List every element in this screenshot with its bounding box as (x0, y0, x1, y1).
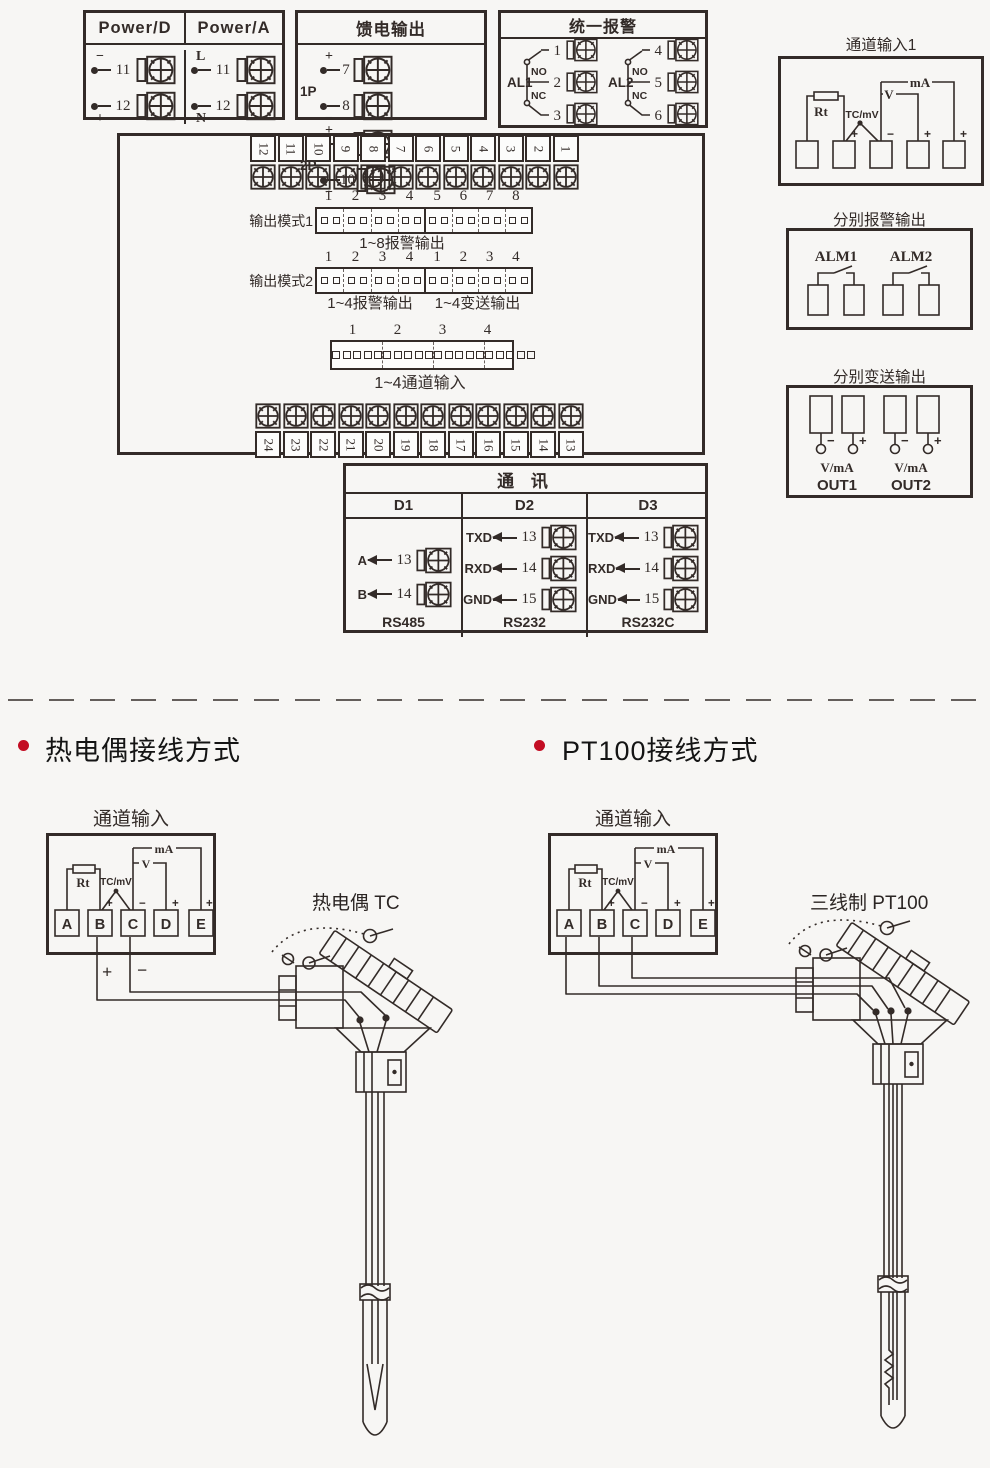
signal-label: GND (588, 592, 617, 607)
sign: + (851, 127, 858, 141)
terminal-number: 7 (340, 62, 352, 79)
comm-terminal-row: GND 15 (463, 584, 586, 615)
channel1-diagram: TC/mV Rt mA V + − + + (781, 59, 981, 183)
jumper-cell (426, 209, 453, 232)
screw-terminal-icon (393, 402, 419, 430)
terminal-number: 4 (655, 43, 663, 59)
sign: + (206, 898, 213, 910)
pin-square (333, 217, 340, 224)
screw-terminal-icon (668, 71, 698, 92)
screw-terminal-icon (352, 55, 394, 85)
jumper-cell (399, 269, 425, 292)
terminal-letter: D (663, 917, 673, 933)
terminal: 21 (338, 402, 364, 458)
pin-square (375, 277, 382, 284)
sign: + (934, 433, 942, 448)
terminal: 2 (525, 135, 551, 191)
tc-wire-plus: + (102, 962, 112, 983)
separate-alarm-title: 分别报警输出 (786, 208, 973, 230)
arrow-left-icon (616, 568, 639, 570)
mode2-jumper-block-b (424, 267, 533, 294)
channel-pin-group (332, 342, 383, 368)
channel-connector-numbers: 1234 (330, 322, 510, 339)
sign: + (674, 898, 681, 910)
pin-square (466, 351, 474, 359)
screw-terminal-icon (567, 39, 597, 60)
channel-number: 4 (465, 322, 510, 339)
terminal-number: 23 (283, 431, 309, 458)
terminal-number: 5 (655, 75, 663, 91)
screw-terminal-icon (250, 163, 276, 191)
arrow-left-icon (493, 599, 517, 601)
terminal: 24 (255, 402, 281, 458)
screw-terminal-icon (567, 71, 597, 92)
wire-dot (191, 103, 198, 110)
terminal: 1 (553, 135, 579, 191)
channel1-box: TC/mV Rt mA V + − + + (778, 56, 984, 186)
wire (198, 105, 211, 107)
pt-channel-box: A B C D E Rt TC/mV mA V + − + + (548, 833, 718, 955)
pt-terminal-dot (904, 1007, 911, 1014)
jumper-cell (506, 209, 532, 232)
pin-square (348, 217, 355, 224)
comm-terminal-row: RXD 14 (463, 553, 586, 584)
polarity-sign: + (325, 49, 333, 65)
comm-title: 通 讯 (346, 466, 705, 494)
pin-square (509, 277, 516, 284)
terminal-number: 20 (365, 431, 391, 458)
comm-col-d1-header: D1 (346, 494, 461, 517)
terminal-number: 8 (360, 135, 386, 162)
pin-square (441, 277, 448, 284)
mode2-caption-b: 1~4变送输出 (420, 292, 535, 313)
tc-terminal-dot (356, 1016, 363, 1023)
arrow-left-icon (368, 559, 392, 561)
arrow-left-icon (493, 537, 517, 539)
rt-label: Rt (76, 876, 90, 890)
screw-terminal-icon (448, 402, 474, 430)
terminal-number: 2 (554, 75, 562, 91)
terminal-number: 8 (340, 98, 352, 115)
separate-transmit-title: 分别变送输出 (786, 365, 973, 387)
jumper-number: 4 (396, 249, 423, 266)
terminal: 17 (448, 402, 474, 458)
comm-terminal-row: TXD 13 (463, 522, 586, 553)
terminal-letter: D (161, 917, 171, 933)
tc-sensor-label: 热电偶 TC (312, 888, 400, 915)
terminal: 19 (393, 402, 419, 458)
comm-col-d2-header: D2 (461, 494, 586, 517)
jumper-cell (317, 269, 344, 292)
signal-label: TXD (466, 530, 492, 545)
pin-square (404, 351, 412, 359)
terminal-letter: C (630, 917, 641, 933)
arrow-left-icon (368, 593, 392, 595)
terminal-number: 13 (518, 529, 540, 546)
terminal: 20 (365, 402, 391, 458)
alarm-relay-al2: AL2 NO NC 4 5 6 (608, 39, 698, 124)
pt-sensor-drawing (789, 914, 975, 1428)
screw-terminal-icon (135, 55, 177, 85)
sign: − (641, 898, 648, 910)
pin-square (364, 351, 372, 359)
pin-square (517, 351, 525, 359)
tc-channel-box: A B C D E Rt TC/mV mA V + − + + (46, 833, 216, 955)
separate-alarm-box: ALM1 ALM2 (786, 228, 973, 330)
nc-label: NC (531, 90, 547, 102)
comm-rows: TXD 13 RXD 14 GND (588, 519, 708, 615)
wire (198, 69, 211, 71)
terminal: 15 (503, 402, 529, 458)
signal-label: RXD (588, 561, 615, 576)
comm-col-d2: TXD 13 RXD 14 GND (461, 519, 586, 637)
screw-terminal-icon (553, 163, 579, 191)
terminal-row: − 11 (86, 52, 184, 88)
terminal-number: 5 (443, 135, 469, 162)
polarity-sign: + (96, 111, 104, 127)
tc-sensor-drawing (272, 922, 458, 1435)
terminal-number: 15 (518, 591, 540, 608)
terminal-number: 6 (655, 108, 663, 124)
comm-terminal-row: TXD 13 (588, 522, 708, 553)
screw-terminal-icon (498, 163, 524, 191)
terminal-row: L 11 (186, 52, 282, 88)
channel-number: 2 (375, 322, 420, 339)
pin-square (387, 277, 394, 284)
power-box: Power/D Power/A − 11 + 12 (83, 10, 285, 120)
tc-section-heading: 热电偶接线方式 (45, 729, 241, 768)
terminal-number: 3 (554, 108, 562, 124)
rear-terminal-strip-top: 12 11 10 9 8 7 6 5 (250, 135, 579, 191)
terminal-number: 13 (640, 529, 662, 546)
pin-square (374, 351, 382, 359)
ma-label: mA (155, 842, 174, 856)
terminal: 18 (420, 402, 446, 458)
sign: + (608, 898, 615, 910)
feed-group-1p: 1P + 7 − 8 (298, 50, 394, 124)
pin-square (321, 217, 328, 224)
terminal-number: 11 (111, 62, 135, 79)
comm-col-d1: A 13 B 14 RS485 (346, 519, 461, 637)
pin-square (321, 277, 328, 284)
separate-transmit-diagram: − + − + V/mA V/mA OUT1 OUT2 (789, 388, 970, 495)
terminal-number: 21 (338, 431, 364, 458)
alm1-label: ALM1 (815, 249, 858, 265)
terminal: 3 (498, 135, 524, 191)
jumper-cell (453, 209, 480, 232)
comm-rows: TXD 13 RXD 14 GND (463, 519, 586, 615)
terminal: 11 (278, 135, 304, 191)
screw-terminal-icon (475, 402, 501, 430)
channel-pin-group (383, 342, 434, 368)
sign: − (887, 127, 894, 141)
sign: + (859, 433, 867, 448)
separate-transmit-box: − + − + V/mA V/mA OUT1 OUT2 (786, 385, 973, 498)
output-mode1-label: 输出模式1 (233, 211, 313, 231)
pin-square (415, 351, 423, 359)
screw-terminal-icon (255, 402, 281, 430)
jumper-cell (453, 269, 480, 292)
comm-box: 通 讯 D1 D2 D3 A 13 B 1 (343, 463, 708, 633)
screw-terminal-icon (352, 91, 394, 121)
bullet-icon (18, 740, 29, 751)
terminal-number: 1 (553, 135, 579, 162)
terminal-number: 9 (333, 135, 359, 162)
v-label: V (884, 87, 894, 102)
comm-col-d3: TXD 13 RXD 14 GND (586, 519, 708, 637)
pin-square (441, 217, 448, 224)
screw-terminal-icon (360, 163, 386, 191)
tcmv-label: TC/mV (845, 109, 878, 121)
pin-square (348, 277, 355, 284)
screw-terminal-icon (662, 524, 700, 551)
power-d-title: Power/D (86, 19, 184, 38)
pt-section-heading: PT100接线方式 (562, 729, 759, 768)
comm-terminal-row: GND 15 (588, 584, 708, 615)
channel-number: 3 (420, 322, 465, 339)
pin-square (456, 217, 463, 224)
terminal-number: 14 (530, 431, 556, 458)
pin-square (506, 351, 514, 359)
terminal: 23 (283, 402, 309, 458)
wiring-diagram-page: { "colors": {"line":"#332b28","magenta":… (0, 0, 990, 1468)
bullet-icon (534, 740, 545, 751)
pin-square (402, 217, 409, 224)
nc-label: NC (632, 90, 648, 102)
terminal-row: N 12 (186, 88, 282, 124)
screw-terminal-icon (415, 581, 453, 608)
jumper-number: 1 (424, 249, 450, 266)
terminal-row: + 7 (315, 52, 394, 88)
signal-label: B (358, 587, 367, 602)
jumper-number: 2 (342, 188, 369, 205)
pin-square (494, 277, 501, 284)
terminal-number: 6 (415, 135, 441, 162)
terminal: 4 (470, 135, 496, 191)
sign: + (960, 127, 967, 141)
comm-rows: A 13 B 14 (346, 519, 461, 611)
arrow-left-icon (615, 537, 639, 539)
terminal: 8 (360, 135, 386, 191)
wire (327, 105, 340, 107)
pin-square (455, 351, 463, 359)
tc-terminal-dot (382, 1014, 389, 1021)
pt-terminal-dot (887, 1007, 894, 1014)
screw-terminal-icon (338, 402, 364, 430)
mode1-jumper-block-b (424, 207, 533, 234)
alarm-relay-al1: AL1 NO NC 1 2 3 (507, 39, 597, 124)
sign: − (901, 433, 909, 448)
comm-col-d3-header: D3 (586, 494, 708, 517)
terminal-letter: E (196, 917, 206, 933)
vma-label: V/mA (894, 460, 928, 475)
signal-label: A (358, 553, 367, 568)
terminal: 16 (475, 402, 501, 458)
terminal-number: 15 (641, 591, 662, 608)
pin-square (425, 351, 433, 359)
arrow-left-icon (493, 568, 517, 570)
jumper-cell (372, 269, 399, 292)
screw-terminal-icon (235, 91, 277, 121)
channel-connector-block (330, 340, 514, 370)
jumper-number: 7 (477, 188, 503, 205)
pin-square (527, 351, 535, 359)
feed-output-title: 馈电输出 (298, 13, 484, 45)
terminal-letter: B (597, 917, 607, 933)
screw-terminal-icon (420, 402, 446, 430)
jumper-number: 6 (450, 188, 476, 205)
terminal-number: 1 (554, 43, 562, 59)
pin-square (414, 277, 421, 284)
pin-square (429, 217, 436, 224)
jumper-cell (479, 269, 506, 292)
terminal-number: 4 (470, 135, 496, 162)
terminal-number: 2 (525, 135, 551, 162)
channel-pin-group (485, 342, 535, 368)
screw-terminal-icon (310, 402, 336, 430)
comm-terminal-row: A 13 (346, 543, 461, 577)
screw-terminal-icon (283, 402, 309, 430)
polarity-sign: L (196, 49, 205, 65)
power-a-terminals: L 11 N 12 (184, 50, 282, 124)
mode1-jumper-block-a (315, 207, 427, 234)
jumper-number: 4 (503, 249, 529, 266)
signal-label: RXD (465, 561, 492, 576)
terminal-number: 24 (255, 431, 281, 458)
channel-number: 1 (330, 322, 375, 339)
jumper-cell (399, 209, 425, 232)
pin-square (434, 351, 442, 359)
pin-square (445, 351, 453, 359)
separate-alarm-diagram: ALM1 ALM2 (789, 231, 970, 327)
jumper-number: 8 (503, 188, 529, 205)
screw-terminal-icon (278, 163, 304, 191)
screw-terminal-icon (443, 163, 469, 191)
jumper-number: 3 (369, 188, 396, 205)
screw-terminal-icon (540, 524, 578, 551)
out1-label: OUT1 (817, 477, 857, 494)
jumper-number: 1 (315, 249, 342, 266)
wire-dot (320, 67, 327, 74)
pin-square (456, 277, 463, 284)
no-label: NO (531, 66, 547, 78)
pin-square (402, 277, 409, 284)
jumper-number: 1 (315, 188, 342, 205)
terminal-number: 3 (498, 135, 524, 162)
pin-square (521, 217, 528, 224)
alm2-label: ALM2 (890, 249, 933, 265)
wire-dot (191, 67, 198, 74)
rt-label: Rt (814, 104, 828, 119)
channel1-title: 通道输入1 (778, 33, 984, 55)
wire (98, 69, 111, 71)
ma-label: mA (910, 75, 931, 90)
wire (327, 69, 340, 71)
screw-terminal-icon (668, 103, 698, 124)
terminal-letter: C (128, 917, 139, 933)
terminal: 12 (250, 135, 276, 191)
terminal-number: 17 (448, 431, 474, 458)
terminal-number: 12 (250, 135, 276, 162)
power-d-terminals: − 11 + 12 (86, 50, 184, 124)
pt-channel-diagram: A B C D E Rt TC/mV mA V + − + + (551, 836, 715, 952)
terminal-number: 7 (388, 135, 414, 162)
jumper-number: 3 (369, 249, 396, 266)
terminal-number: 12 (211, 98, 235, 115)
terminal-letter: A (62, 917, 73, 933)
terminal: 6 (415, 135, 441, 191)
terminal-number: 11 (278, 135, 304, 162)
no-label: NO (632, 66, 648, 78)
v-label: V (142, 857, 151, 871)
screw-terminal-icon (525, 163, 551, 191)
jumper-cell (317, 209, 344, 232)
jumper-cell (344, 209, 371, 232)
screw-terminal-icon (415, 547, 453, 574)
signal-label: TXD (588, 530, 614, 545)
pin-square (485, 351, 493, 359)
screw-terminal-icon (235, 55, 277, 85)
pin-square (383, 351, 391, 359)
pin-square (375, 217, 382, 224)
tc-wire-minus: − (137, 960, 147, 981)
pin-square (353, 351, 361, 359)
pin-square (360, 277, 367, 284)
unified-alarm-diagram: AL1 NO NC 1 2 3 AL2 NO NC (501, 37, 705, 125)
power-box-header: Power/D Power/A (86, 13, 282, 45)
screw-terminal-icon (662, 555, 700, 582)
tc-box-title: 通道输入 (46, 804, 216, 831)
rt-label: Rt (578, 876, 592, 890)
channel-connector-caption: 1~4通道输入 (330, 369, 510, 393)
pin-square (468, 277, 475, 284)
jumper-number: 3 (477, 249, 503, 266)
jumper-number: 5 (424, 188, 450, 205)
screw-terminal-icon (540, 555, 578, 582)
polarity-sign: N (196, 111, 206, 127)
comm-terminal-row: B 14 (346, 577, 461, 611)
tc-junction-tip (367, 1364, 383, 1410)
jumper-cell (426, 269, 453, 292)
pin-square (494, 217, 501, 224)
wire (98, 105, 111, 107)
terminal-number: 18 (420, 431, 446, 458)
terminal-number: 12 (111, 98, 135, 115)
sign: − (827, 433, 835, 448)
screw-terminal-icon (135, 91, 177, 121)
screw-terminal-icon (662, 586, 700, 613)
terminal-number: 16 (475, 431, 501, 458)
mode1-numbers-a: 1234 (315, 188, 423, 205)
unified-alarm-box: 统一报警 AL1 NO NC 1 2 3 AL2 (498, 10, 708, 128)
wire-dot (320, 103, 327, 110)
pin-square (509, 217, 516, 224)
screw-terminal-icon (415, 163, 441, 191)
terminal-letter: A (564, 917, 575, 933)
terminal-number: 15 (503, 431, 529, 458)
jumper-cell (479, 209, 506, 232)
polarity-sign: − (96, 49, 104, 65)
tcmv-label: TC/mV (602, 877, 634, 888)
terminal-number: 10 (305, 135, 331, 162)
mode2-jumper-block-a (315, 267, 427, 294)
terminal-letter: E (698, 917, 708, 933)
pin-square (387, 217, 394, 224)
screw-terminal-icon (503, 402, 529, 430)
mode2-numbers-a: 1234 (315, 249, 423, 266)
terminal-letter: B (95, 917, 105, 933)
pin-square (343, 351, 351, 359)
